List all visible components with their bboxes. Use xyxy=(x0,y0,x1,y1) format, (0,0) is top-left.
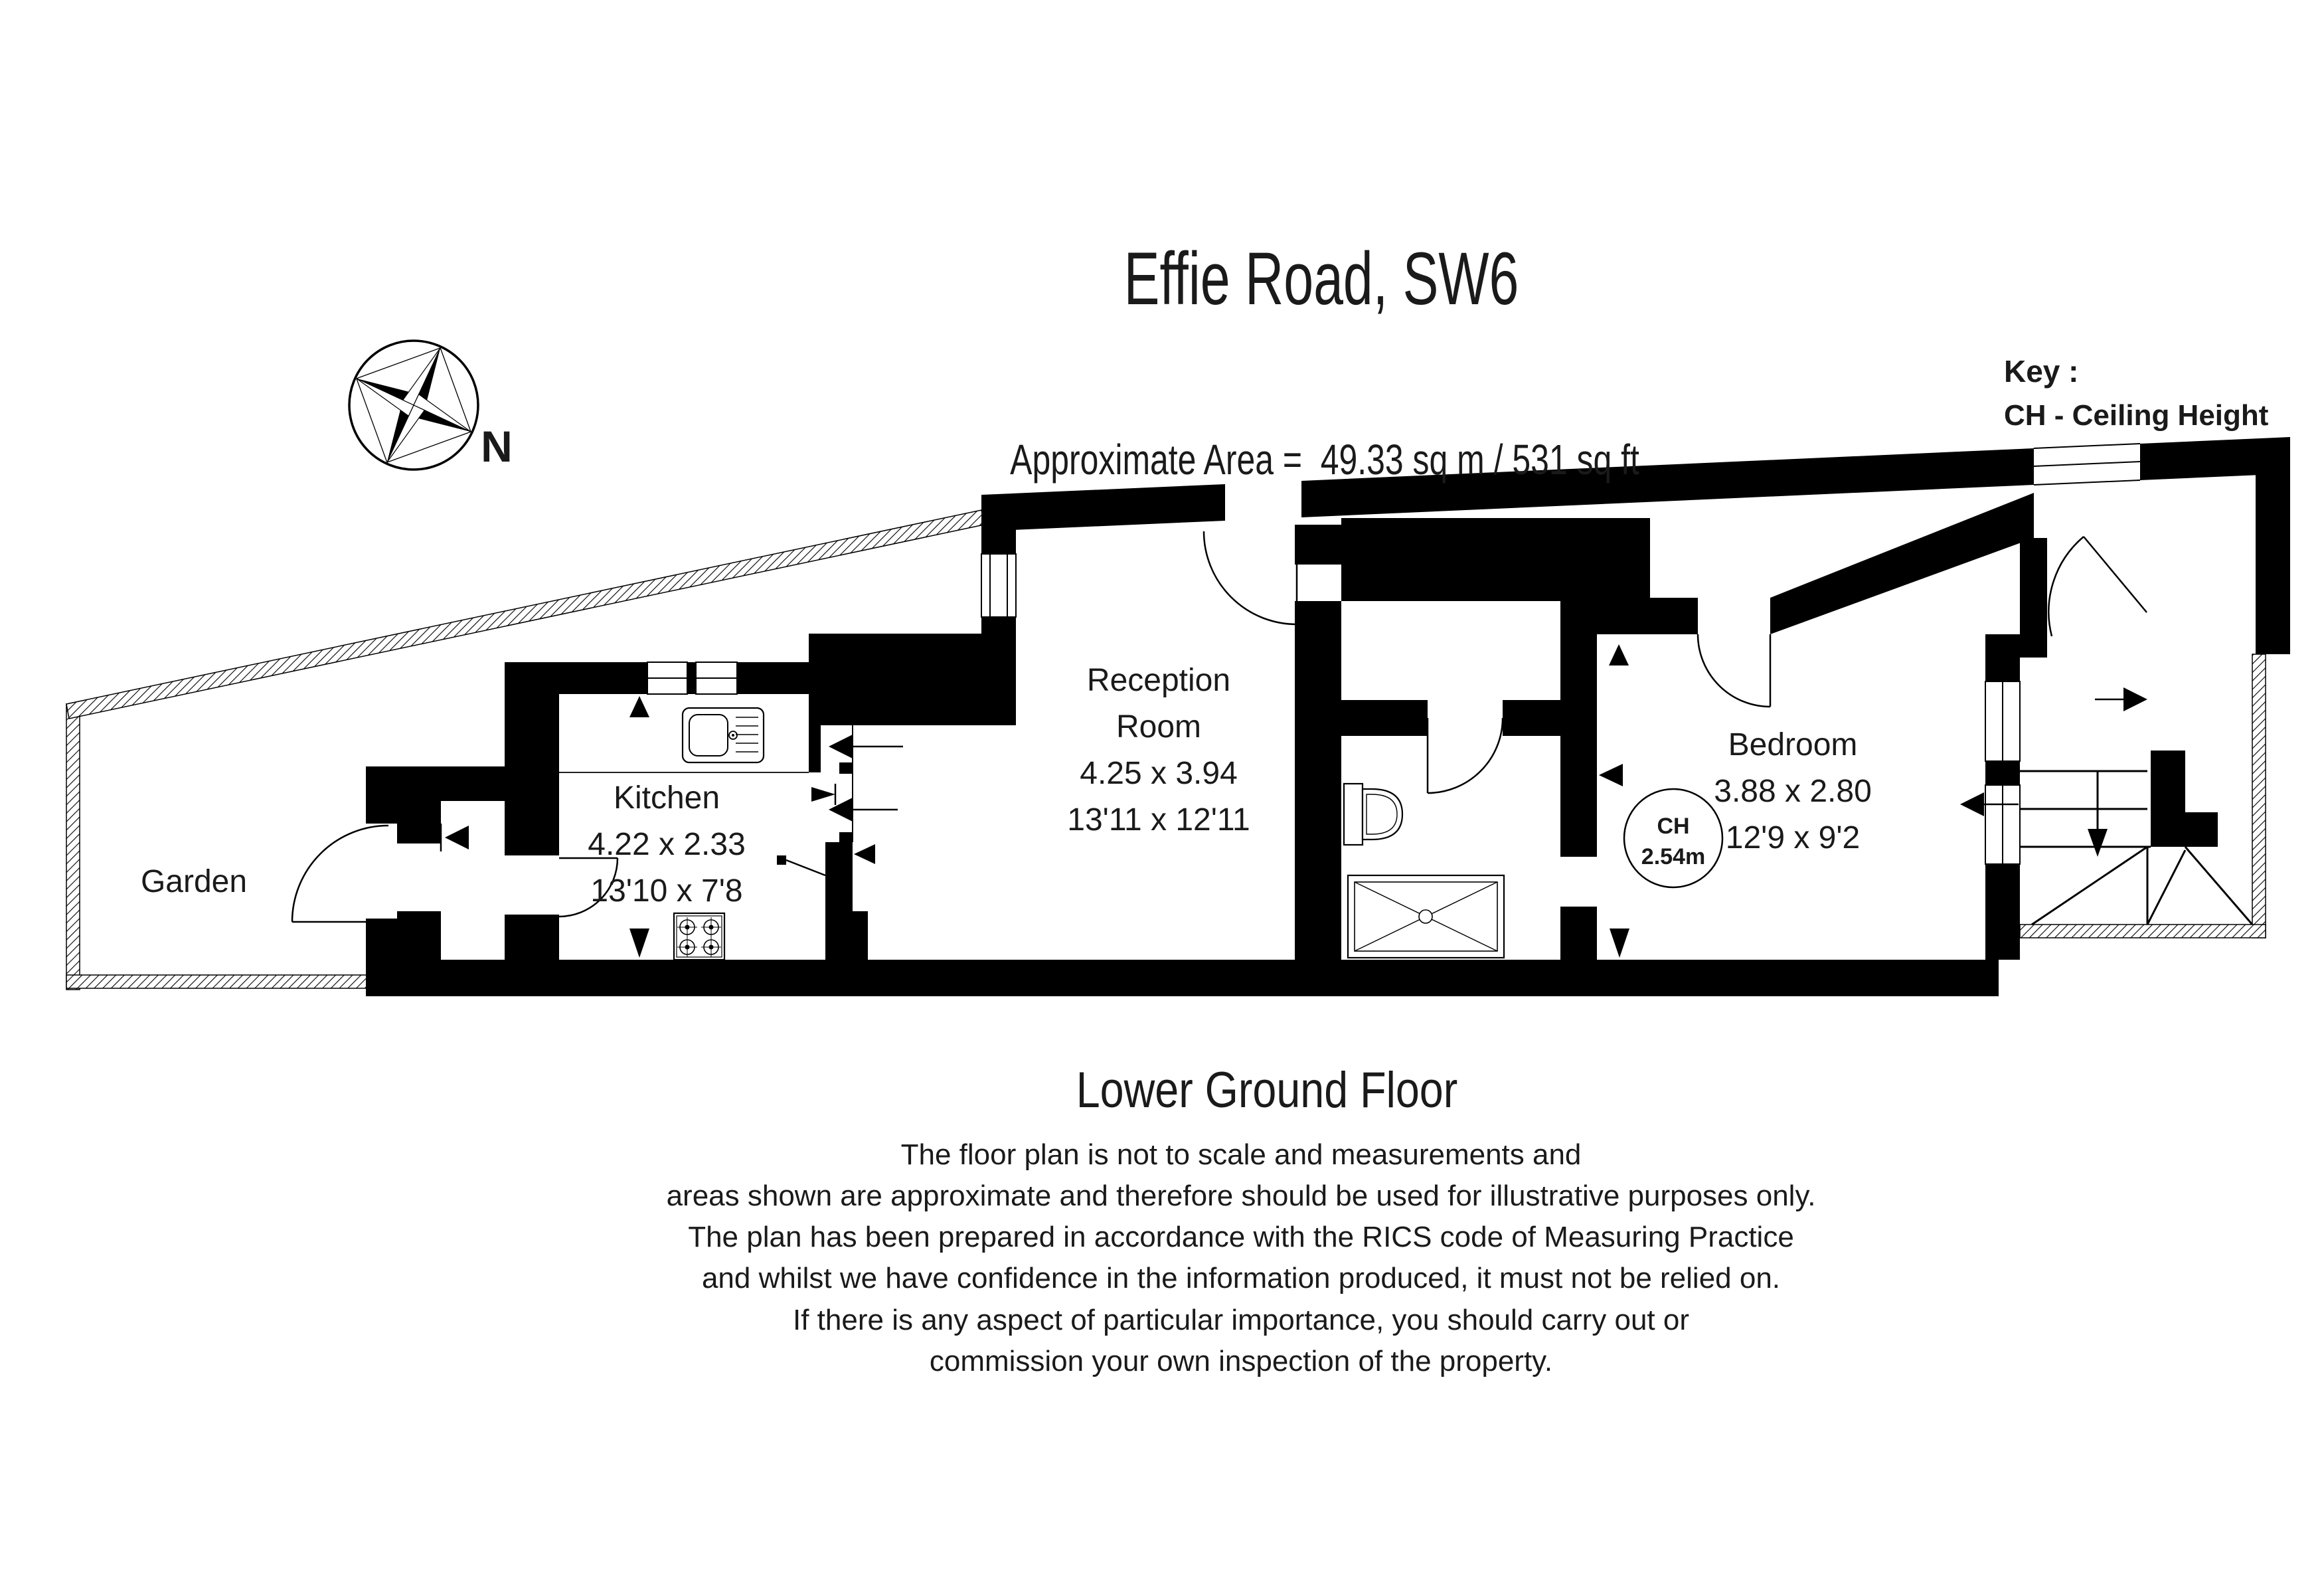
disclaimer-line-6: commission your own inspection of the pr… xyxy=(930,1347,1552,1376)
disclaimer-line-4: and whilst we have confidence in the inf… xyxy=(702,1264,1780,1293)
kitchen-dims-metric: 4.22 x 2.33 xyxy=(588,829,746,861)
ceiling-height-value: 2.54m xyxy=(1641,845,1705,868)
approximate-area: Approximate Area = 49.33 sq m / 531 sq f… xyxy=(1010,438,1639,481)
key-entry: CH - Ceiling Height xyxy=(2004,401,2268,430)
garden-label: Garden xyxy=(141,866,247,898)
compass-icon xyxy=(330,321,497,489)
reception-label-line1: Reception xyxy=(1087,665,1230,697)
hob-icon xyxy=(674,913,724,960)
arrow-kitchen-up xyxy=(629,696,649,717)
page-title: Effie Road, SW6 xyxy=(1124,242,1519,316)
toilet-icon xyxy=(1344,784,1402,845)
arrow-bedroom-down xyxy=(1610,929,1629,958)
bathroom-door-arc xyxy=(1428,718,1503,793)
compass-north-label: N xyxy=(481,424,513,468)
arrow-kitchen-down xyxy=(629,929,649,958)
disclaimer-line-1: The floor plan is not to scale and measu… xyxy=(901,1140,1582,1170)
bedroom-dims-imperial: 12'9 x 9'2 xyxy=(1726,822,1860,854)
reception-dims-metric: 4.25 x 3.94 xyxy=(1080,758,1238,790)
key-heading: Key : xyxy=(2004,356,2078,387)
arrow-step-4 xyxy=(854,844,875,864)
reception-dims-imperial: 13'11 x 12'11 xyxy=(1067,804,1250,836)
arrow-bedroom-left xyxy=(1599,764,1623,786)
disclaimer-line-3: The plan has been prepared in accordance… xyxy=(688,1223,1794,1252)
bedroom-door-arc xyxy=(1698,634,1770,707)
reception-door-arc xyxy=(1204,531,1297,624)
bedroom-dims-metric: 3.88 x 2.80 xyxy=(1714,776,1872,808)
entrance-door-arc xyxy=(2048,537,2147,636)
shower-icon xyxy=(1348,875,1504,958)
arrow-stairhall-right xyxy=(2095,687,2147,711)
steps-door-leaf xyxy=(786,860,825,875)
arrow-step-3 xyxy=(829,798,898,822)
disclaimer-line-5: If there is any aspect of particular imp… xyxy=(793,1306,1689,1335)
floor-name: Lower Ground Floor xyxy=(1076,1065,1457,1116)
sink-icon xyxy=(683,708,764,762)
staircase xyxy=(2020,654,2266,938)
kitchen-dims-imperial: 13'10 x 7'8 xyxy=(590,875,742,907)
garden-door-arc xyxy=(292,826,388,922)
kitchen-label: Kitchen xyxy=(614,782,720,814)
arrow-step-2 xyxy=(811,784,835,805)
arrow-vestibule xyxy=(441,824,469,851)
arrow-corridor-up xyxy=(1609,644,1629,665)
ceiling-height-label: CH xyxy=(1657,815,1689,838)
floorplan-page: Effie Road, SW6 Approximate Area = 49.33… xyxy=(0,0,2324,1594)
disclaimer-line-2: areas shown are approximate and therefor… xyxy=(667,1182,1816,1211)
bedroom-label: Bedroom xyxy=(1728,729,1858,761)
arrow-step-1 xyxy=(829,735,903,758)
stair-direction-arrow xyxy=(2088,780,2108,857)
reception-label-line2: Room xyxy=(1116,711,1201,743)
